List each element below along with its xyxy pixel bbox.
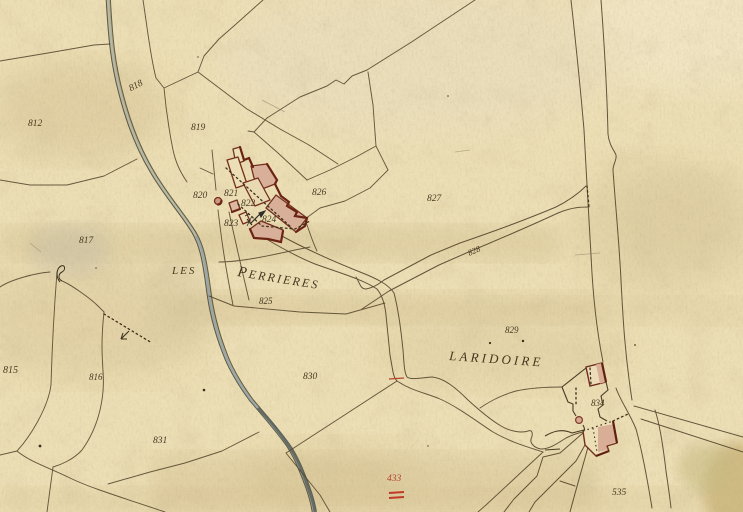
svg-text:812: 812 <box>28 119 43 129</box>
svg-text:829: 829 <box>505 325 519 335</box>
svg-text:824: 824 <box>262 215 277 225</box>
svg-text:834: 834 <box>591 398 605 408</box>
svg-text:825: 825 <box>259 296 273 306</box>
svg-text:816: 816 <box>89 372 103 382</box>
svg-text:831: 831 <box>153 436 167 446</box>
svg-text:535: 535 <box>612 488 627 498</box>
svg-text:827: 827 <box>427 194 443 204</box>
svg-text:830: 830 <box>303 372 318 382</box>
svg-text:826: 826 <box>312 188 327 198</box>
svg-text:823: 823 <box>224 219 239 229</box>
svg-text:817: 817 <box>79 236 95 246</box>
svg-text:LES: LES <box>171 265 196 277</box>
svg-text:820: 820 <box>193 191 208 201</box>
svg-text:819: 819 <box>191 123 206 133</box>
svg-text:821: 821 <box>224 189 238 199</box>
svg-text:433: 433 <box>387 474 402 484</box>
svg-text:822: 822 <box>241 199 256 209</box>
svg-text:815: 815 <box>3 365 18 376</box>
